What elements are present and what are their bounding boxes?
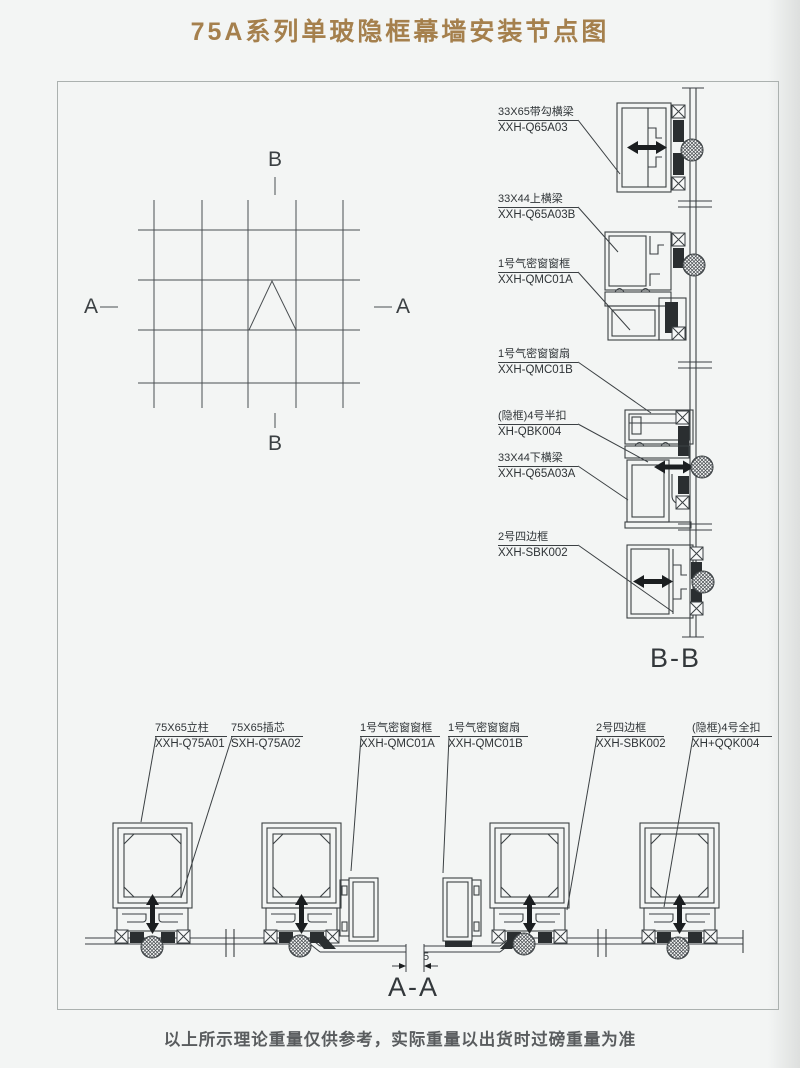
plan-triangle-marker [249, 281, 296, 330]
section-bb-drawing [578, 88, 714, 637]
bb-leader-lines [578, 120, 673, 612]
aa-gasket-1 [141, 936, 163, 958]
callout-name: 75X65立柱 [155, 722, 227, 737]
callout-name: 1号气密窗窗框 [360, 722, 440, 737]
callout-bb-window-sash: 1号气密窗窗扇 XXH-QMC01B [498, 348, 578, 377]
callout-aa-surround-frame: 2号四边框 XXH-SBK002 [596, 722, 664, 751]
callout-code: XXH-Q75A01 [155, 737, 227, 751]
plan-label-a-left: A [84, 295, 98, 319]
dimension-value: 5 [423, 951, 429, 963]
bb-gasket-3 [691, 456, 713, 478]
section-aa-drawing [85, 737, 743, 972]
callout-code: XXH-Q65A03B [498, 208, 578, 222]
callout-name: 33X44上横梁 [498, 193, 578, 208]
callout-aa-window-frame: 1号气密窗窗框 XXH-QMC01A [360, 722, 440, 751]
bb-profile-sash-lower-beam [625, 410, 694, 528]
callout-aa-insert-core: 75X65插芯 SXH-Q75A02 [231, 722, 303, 751]
callout-code: SXH-Q75A02 [231, 737, 303, 751]
drawing-canvas [0, 0, 800, 1068]
callout-code: XH+QQK004 [692, 737, 772, 751]
callout-bb-upper-beam: 33X44上横梁 XXH-Q65A03B [498, 193, 578, 222]
aa-gasket-3 [513, 933, 535, 955]
callout-name: (隐框)4号半扣 [498, 410, 578, 425]
callout-bb-lower-beam: 33X44下横梁 XXH-Q65A03A [498, 452, 578, 481]
callout-aa-full-buckle: (隐框)4号全扣 XH+QQK004 [692, 722, 772, 751]
callout-name: 1号气密窗窗扇 [498, 348, 578, 363]
bb-gasket-2 [683, 254, 705, 276]
callout-aa-column: 75X65立柱 XXH-Q75A01 [155, 722, 227, 751]
callout-name: 2号四边框 [498, 531, 578, 546]
callout-name: 33X65带勾横梁 [498, 106, 578, 121]
aa-leader-lines [141, 737, 693, 910]
callout-code: XH-QBK004 [498, 425, 578, 439]
section-title-bb: B-B [650, 643, 701, 674]
bb-gasket-4 [692, 571, 714, 593]
aa-gasket-4 [667, 937, 689, 959]
footer-note: 以上所示理论重量仅供参考，实际重量以出货时过磅重量为准 [0, 1026, 800, 1050]
callout-code: XXH-QMC01A [498, 273, 578, 287]
bb-profile-upper-beam-frame [605, 232, 686, 340]
callout-code: XXH-SBK002 [498, 546, 578, 560]
bb-gasket-1 [681, 139, 703, 161]
callout-code: XXH-SBK002 [596, 737, 664, 751]
callout-code: XXH-QMC01B [498, 363, 578, 377]
plan-grid [100, 177, 392, 428]
callout-aa-window-sash: 1号气密窗窗扇 XXH-QMC01B [448, 722, 528, 751]
plan-label-b-top: B [268, 148, 282, 172]
section-title-aa: A-A [388, 972, 439, 1003]
aa-window-frame [340, 878, 378, 941]
aa-window-sash [443, 878, 481, 947]
aa-mullion-4 [640, 823, 719, 943]
bb-profile-hook-beam [617, 103, 685, 192]
callout-name: 2号四边框 [596, 722, 664, 737]
callout-code: XXH-Q65A03 [498, 121, 578, 135]
callout-name: 75X65插芯 [231, 722, 303, 737]
scanned-drawing-page: 75A系列单玻隐框幕墙安装节点图 [0, 0, 800, 1068]
aa-mullion-1 [113, 823, 192, 943]
callout-bb-hook-beam: 33X65带勾横梁 XXH-Q65A03 [498, 106, 578, 135]
aa-gasket-2 [289, 935, 311, 957]
callout-name: 33X44下横梁 [498, 452, 578, 467]
aa-mullion-3 [490, 823, 569, 943]
callout-code: XXH-Q65A03A [498, 467, 578, 481]
callout-bb-surround-frame: 2号四边框 XXH-SBK002 [498, 531, 578, 560]
callout-code: XXH-QMC01A [360, 737, 440, 751]
callout-code: XXH-QMC01B [448, 737, 528, 751]
callout-name: 1号气密窗窗框 [498, 258, 578, 273]
aa-dimension-5 [392, 944, 438, 972]
callout-name: 1号气密窗窗扇 [448, 722, 528, 737]
callout-bb-half-buckle: (隐框)4号半扣 XH-QBK004 [498, 410, 578, 439]
callout-bb-window-frame: 1号气密窗窗框 XXH-QMC01A [498, 258, 578, 287]
plan-label-b-bottom: B [268, 432, 282, 456]
aa-mullion-2 [262, 823, 341, 943]
callout-name: (隐框)4号全扣 [692, 722, 772, 737]
plan-label-a-right: A [396, 295, 410, 319]
